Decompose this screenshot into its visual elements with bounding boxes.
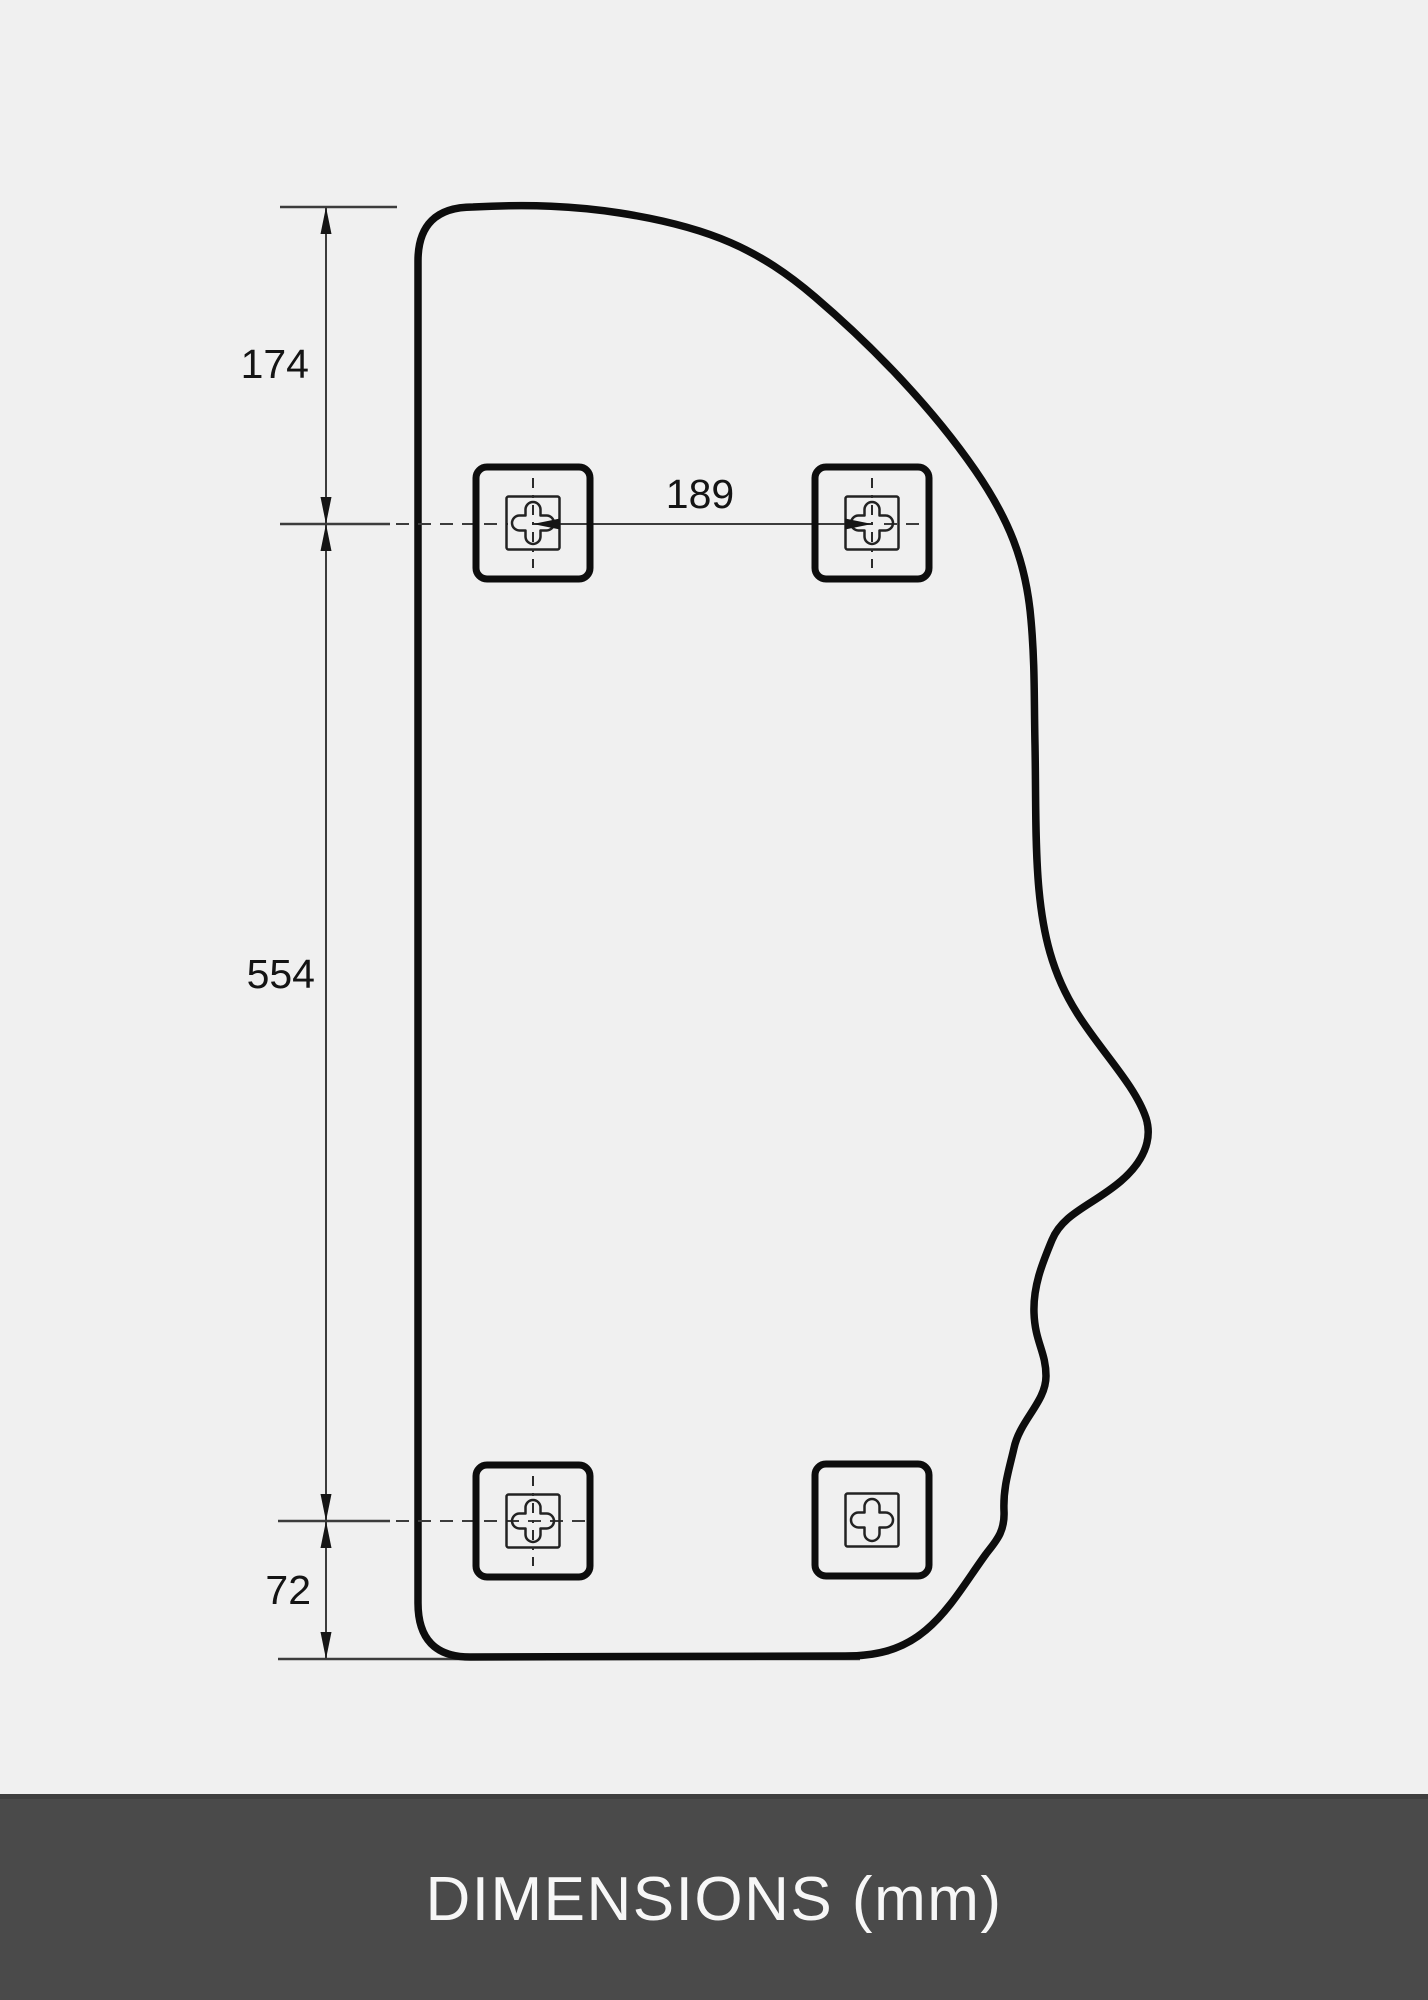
arrowhead-up-top — [321, 207, 332, 234]
footer-title: DIMENSIONS (mm) — [425, 1864, 1002, 1935]
arrowhead-down-lower — [321, 1494, 332, 1521]
arrowhead-up-middle — [321, 524, 332, 551]
footer-bar: DIMENSIONS (mm) — [0, 1794, 1428, 2000]
dim-label-top-offset: 174 — [241, 341, 309, 387]
dim-label-hole-spacing-horizontal: 189 — [666, 471, 734, 517]
dim-label-hole-spacing-vertical: 554 — [247, 951, 315, 997]
arrowhead-right-hole — [845, 519, 872, 530]
dim-label-bottom-offset: 72 — [265, 1567, 311, 1613]
drawing-canvas: 174 189 554 72 — [0, 0, 1428, 1794]
bracket-bottom-right — [815, 1464, 929, 1576]
face-profile-outline — [418, 206, 1148, 1657]
arrowhead-down-upper — [321, 497, 332, 524]
arrowhead-left-hole — [533, 519, 560, 530]
arrowhead-up-bottomseg — [321, 1521, 332, 1548]
arrowhead-down-bottom — [321, 1632, 332, 1659]
dimension-drawing-page: 174 189 554 72 DIMENSIONS (mm) — [0, 0, 1428, 2000]
